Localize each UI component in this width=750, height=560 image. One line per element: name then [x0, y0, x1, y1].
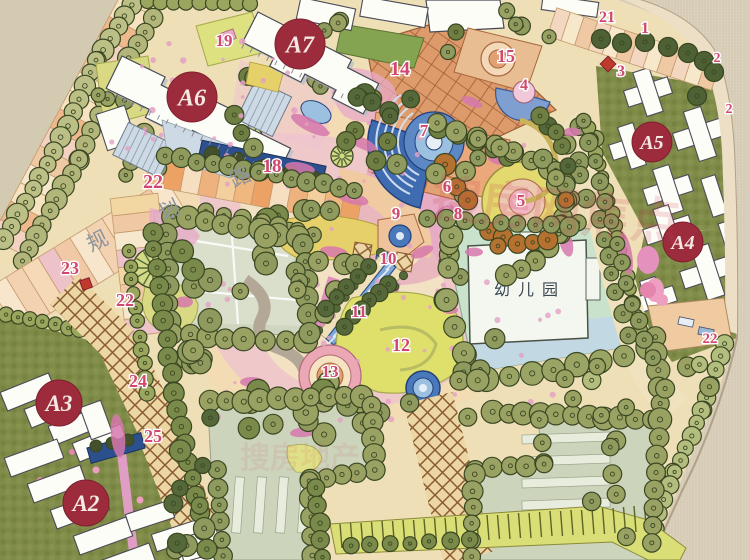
svg-text:4: 4 — [520, 77, 528, 94]
svg-text:3: 3 — [617, 63, 625, 80]
svg-text:2: 2 — [726, 102, 733, 117]
svg-text:14: 14 — [390, 58, 410, 80]
svg-text:22: 22 — [703, 331, 718, 347]
svg-text:22: 22 — [116, 290, 134, 310]
svg-text:A2: A2 — [71, 491, 100, 516]
svg-text:22: 22 — [143, 171, 163, 193]
svg-text:1: 1 — [641, 20, 649, 37]
svg-text:18: 18 — [263, 156, 282, 177]
svg-text:搜房地产: 搜房地产 — [240, 442, 360, 475]
svg-text:23: 23 — [61, 258, 79, 278]
svg-text:25: 25 — [144, 426, 162, 446]
svg-text:A3: A3 — [44, 391, 73, 416]
svg-text:A5: A5 — [638, 132, 663, 154]
svg-text:24: 24 — [129, 371, 147, 391]
svg-text:10: 10 — [380, 249, 397, 268]
svg-text:11: 11 — [351, 302, 367, 321]
svg-text:19: 19 — [216, 31, 233, 50]
svg-text:13: 13 — [322, 362, 339, 381]
svg-text:7: 7 — [420, 121, 429, 140]
svg-text:15: 15 — [497, 46, 515, 66]
svg-text:2: 2 — [714, 51, 721, 66]
svg-text:12: 12 — [392, 335, 410, 355]
svg-text:A7: A7 — [284, 33, 315, 59]
svg-text:21: 21 — [599, 9, 615, 26]
svg-text:9: 9 — [392, 204, 401, 223]
svg-text:A6: A6 — [176, 86, 206, 112]
